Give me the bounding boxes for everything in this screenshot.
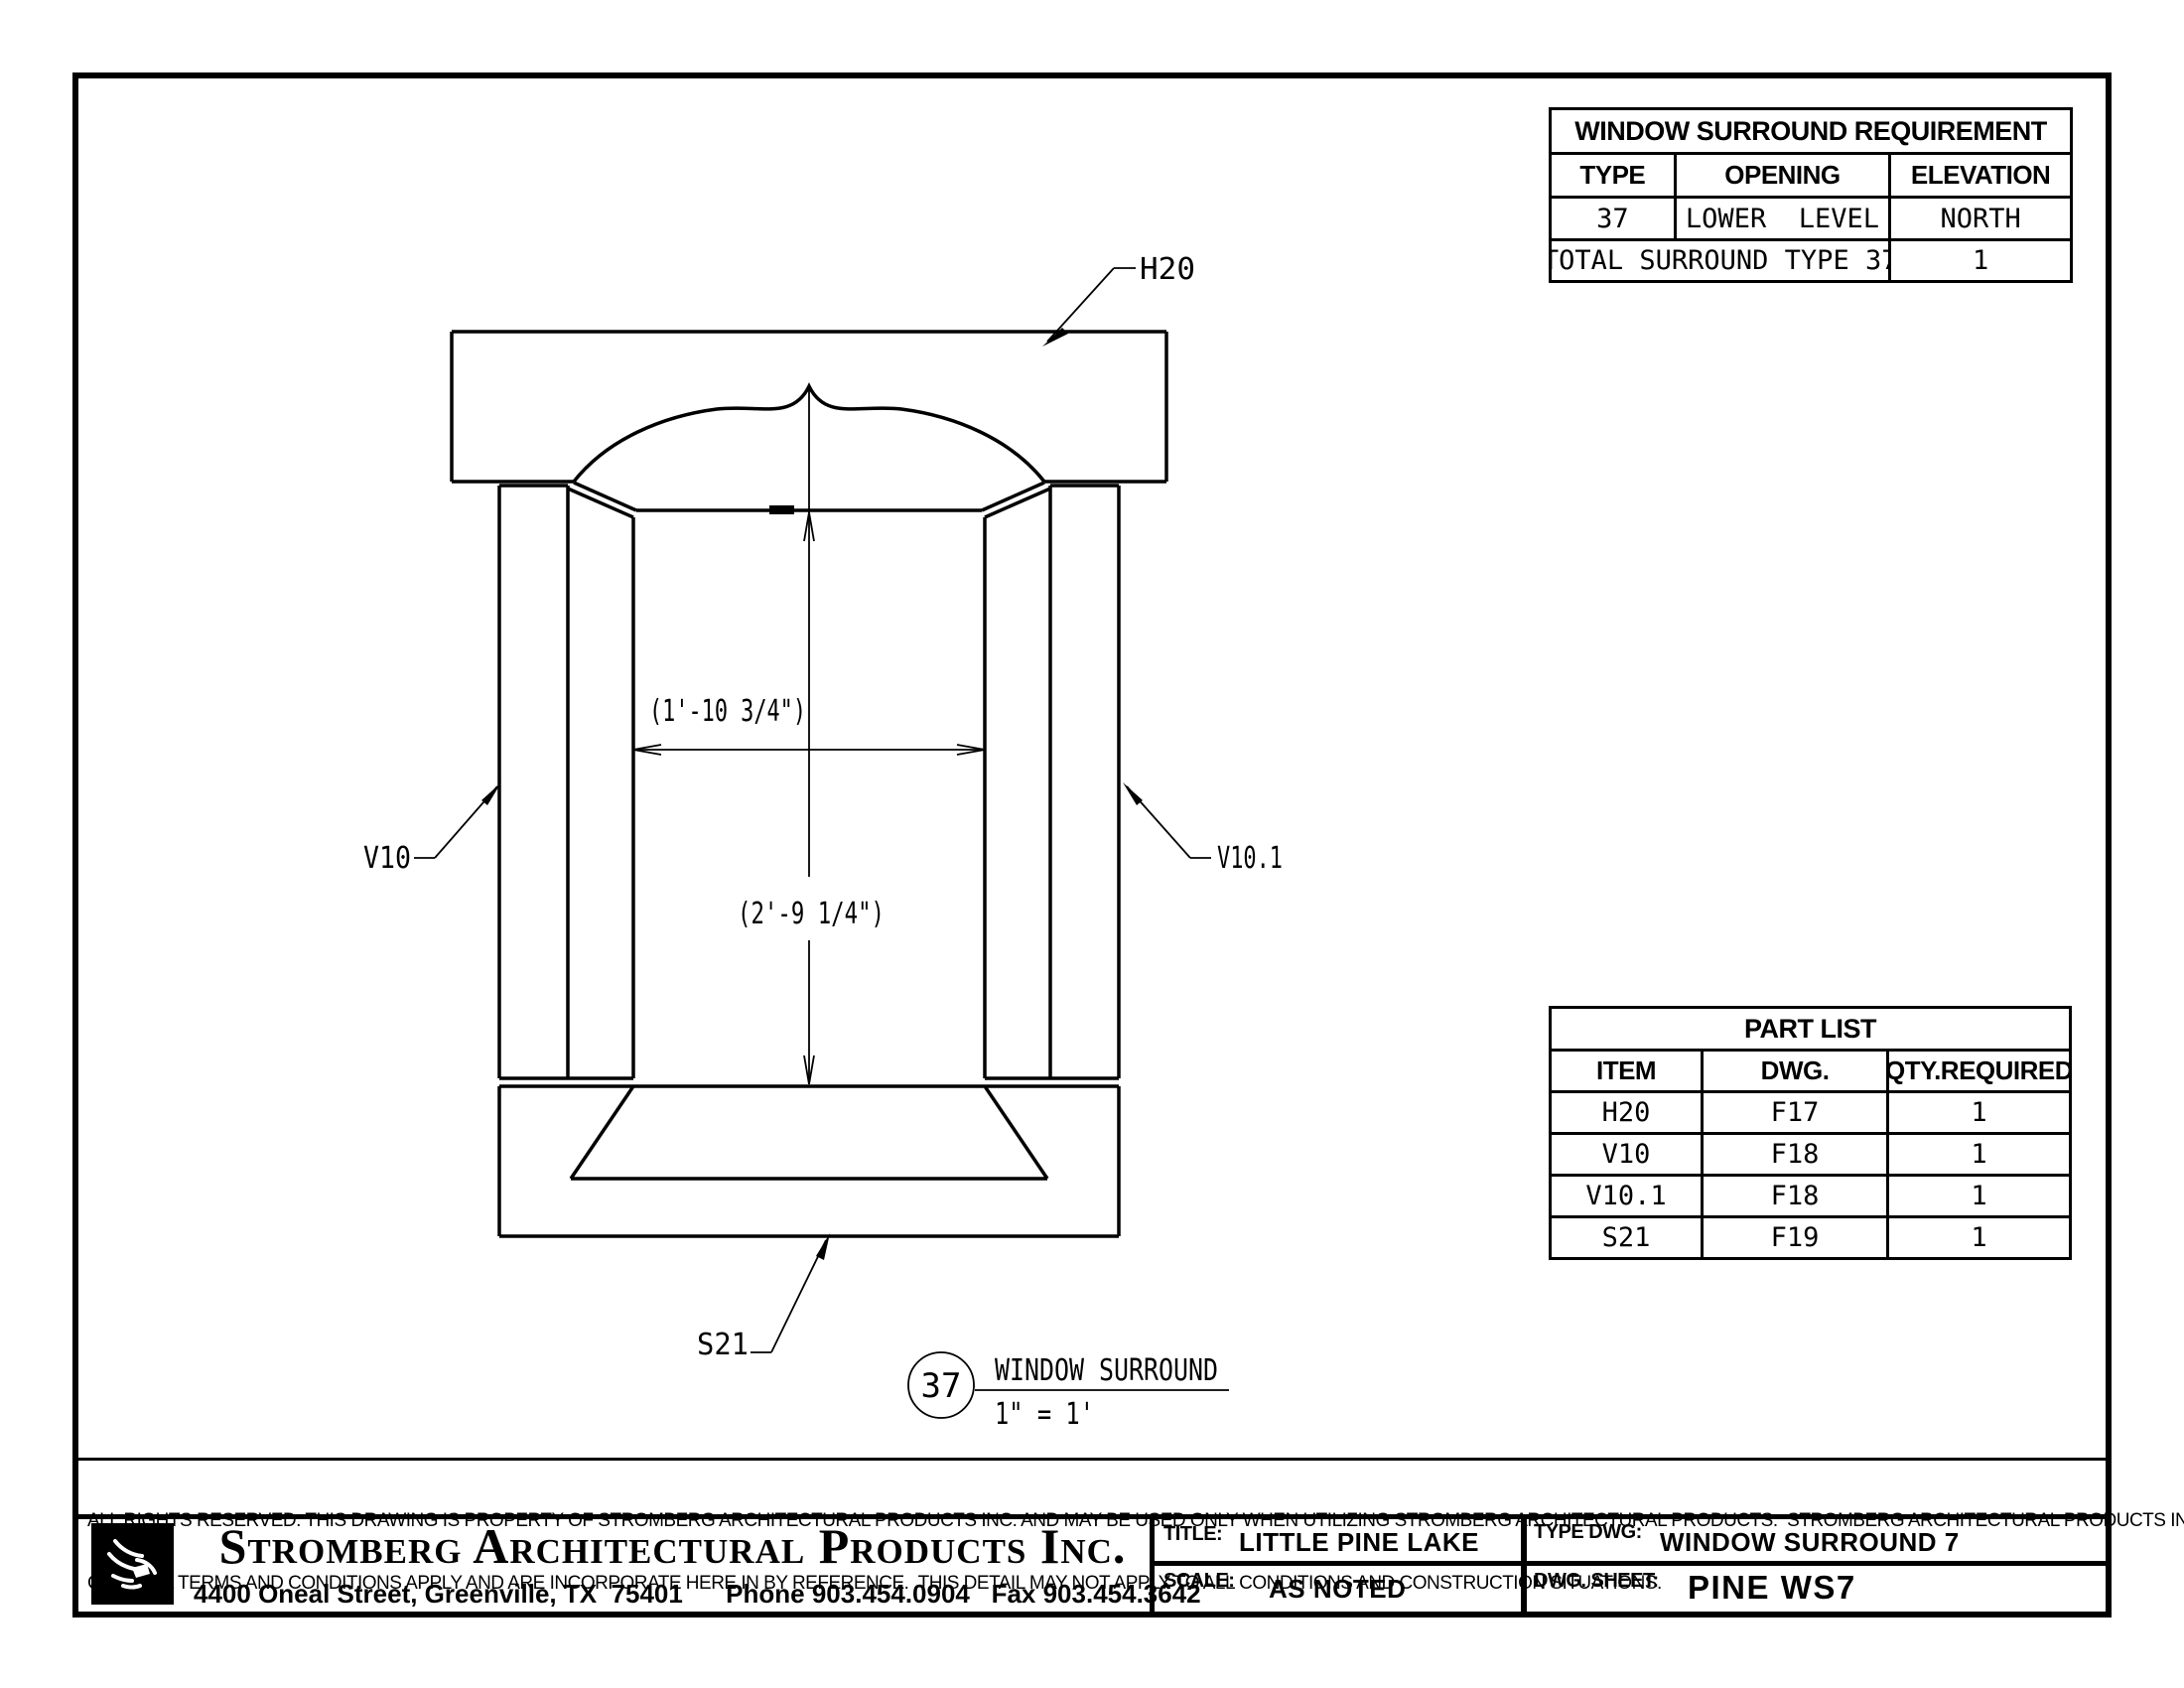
part-list-table: PART LIST ITEM DWG. QTY.REQUIRED H20 F17…: [1549, 1006, 2072, 1260]
part-list-title: PART LIST: [1552, 1009, 2069, 1049]
part-dwg: F18: [1701, 1135, 1886, 1174]
part-qty: 1: [1886, 1093, 2069, 1132]
requirement-opening: LOWER LEVEL: [1674, 199, 1889, 238]
leader-s21: S21: [697, 1233, 830, 1362]
callout-title: WINDOW SURROUND: [995, 1353, 1218, 1388]
scale-value: AS NOTED: [1269, 1574, 1406, 1605]
part-qty: 1: [1886, 1177, 2069, 1215]
scale-label: SCALE:: [1163, 1570, 1234, 1593]
col-header-qty: QTY.REQUIRED: [1886, 1052, 2069, 1090]
col-header-elevation: ELEVATION: [1888, 155, 2070, 196]
requirement-elevation: NORTH: [1888, 199, 2070, 238]
legal-separator-line: [78, 1458, 2106, 1461]
drawing-sheet: (2'-9 1/4") (1'-10 3/4") H20 V10: [0, 0, 2184, 1688]
leader-v10-1: V10.1: [1123, 782, 1283, 876]
requirement-table: WINDOW SURROUND REQUIREMENT TYPE OPENING…: [1549, 107, 2073, 283]
col-header-dwg: DWG.: [1701, 1052, 1886, 1090]
height-dimension: (2'-9 1/4"): [732, 386, 890, 1084]
requirement-table-header-row: TYPE OPENING ELEVATION: [1552, 152, 2070, 196]
part-row-v10-1: V10.1 F18 1: [1552, 1174, 2069, 1215]
type-dwg-label: TYPE DWG:: [1534, 1521, 1642, 1544]
callout-number: 37: [921, 1366, 962, 1406]
v10-label: V10: [363, 841, 411, 876]
title-label: TITLE:: [1163, 1523, 1222, 1546]
stromberg-logo-glyph: [91, 1523, 174, 1605]
leader-v10: V10: [363, 782, 501, 876]
requirement-table-data-row: 37 LOWER LEVEL NORTH: [1552, 196, 2070, 238]
dwg-sheet-label: DWG. SHEET:: [1534, 1570, 1659, 1593]
title-block-row-divider: [1150, 1561, 2106, 1566]
stromberg-logo: [91, 1523, 174, 1605]
width-dimension-text: (1'-10 3/4"): [649, 694, 806, 729]
part-dwg: F19: [1701, 1218, 1886, 1257]
detail-callout: 37 WINDOW SURROUND 1" = 1': [908, 1352, 1229, 1432]
part-qty: 1: [1886, 1135, 2069, 1174]
company-name: Stromberg Architectural Products Inc.: [194, 1519, 1152, 1573]
part-list-title-row: PART LIST: [1552, 1009, 2069, 1049]
part-dwg: F17: [1701, 1093, 1886, 1132]
v10-1-label: V10.1: [1217, 841, 1283, 876]
type-dwg-value: WINDOW SURROUND 7: [1660, 1527, 1960, 1558]
part-item: V10.1: [1552, 1177, 1701, 1215]
sill-s21-outline: [499, 1086, 1119, 1236]
requirement-type: 37: [1552, 199, 1674, 238]
part-dwg: F18: [1701, 1177, 1886, 1215]
part-row-s21: S21 F19 1: [1552, 1215, 2069, 1257]
s21-label: S21: [697, 1328, 749, 1362]
callout-scale: 1" = 1': [995, 1397, 1094, 1432]
dwg-sheet-value: PINE WS7: [1688, 1569, 1856, 1607]
title-value: LITTLE PINE LAKE: [1239, 1527, 1479, 1558]
requirement-table-title: WINDOW SURROUND REQUIREMENT: [1552, 110, 2070, 152]
total-surround-label: TOTAL SURROUND TYPE 37: [1552, 241, 1888, 280]
height-dimension-text: (2'-9 1/4"): [738, 897, 885, 931]
part-item: S21: [1552, 1218, 1701, 1257]
part-row-v10: V10 F18 1: [1552, 1132, 2069, 1174]
right-jamb-outline: [982, 483, 1119, 1078]
h20-label: H20: [1140, 252, 1195, 287]
total-surround-value: 1: [1888, 241, 2070, 280]
part-item: H20: [1552, 1093, 1701, 1132]
soffit-tick-mark: [769, 505, 794, 514]
left-jamb-outline: [499, 483, 636, 1078]
part-qty: 1: [1886, 1218, 2069, 1257]
requirement-table-title-row: WINDOW SURROUND REQUIREMENT: [1552, 110, 2070, 152]
company-address: 4400 Oneal Street, Greenville, TX 75401 …: [194, 1579, 1152, 1610]
col-header-type: TYPE: [1552, 155, 1674, 196]
part-row-h20: H20 F17 1: [1552, 1090, 2069, 1132]
col-header-opening: OPENING: [1674, 155, 1889, 196]
part-list-header-row: ITEM DWG. QTY.REQUIRED: [1552, 1049, 2069, 1090]
col-header-item: ITEM: [1552, 1052, 1701, 1090]
part-item: V10: [1552, 1135, 1701, 1174]
requirement-table-total-row: TOTAL SURROUND TYPE 37 1: [1552, 238, 2070, 280]
